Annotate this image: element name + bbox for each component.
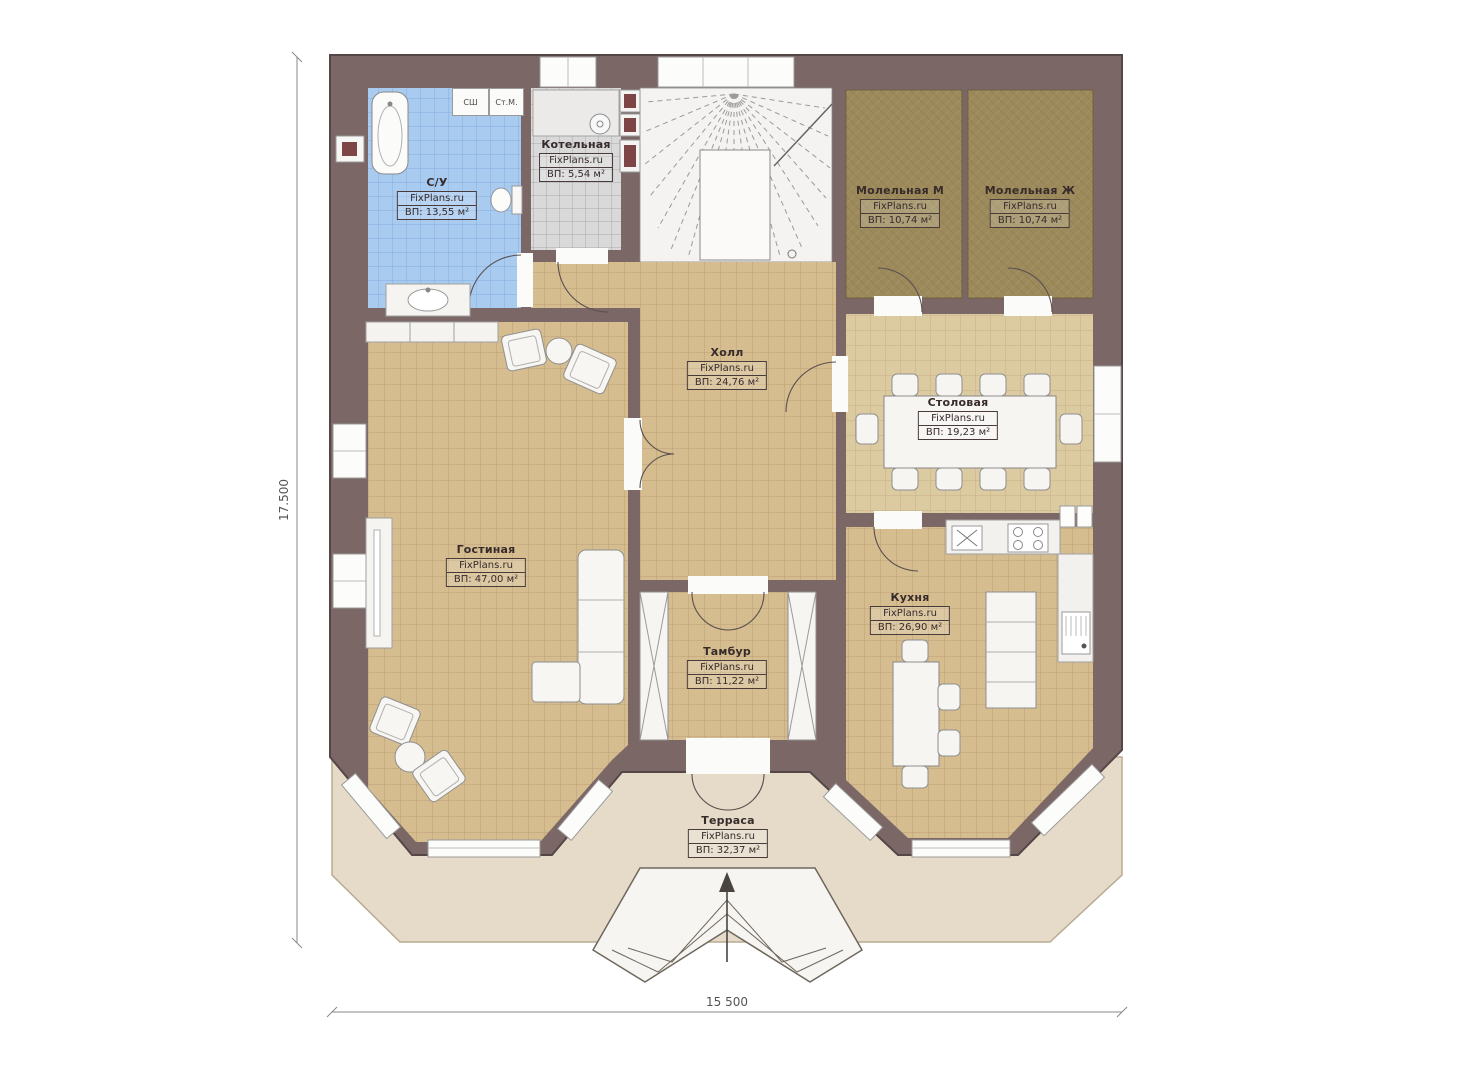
window-top-stairs [658,57,794,87]
floor-plan-canvas: С/У FixPlans.ru ВП: 13,55 м² Котельная F… [0,0,1474,1080]
room-area: ВП: 10,74 м² [991,213,1069,227]
room-label-terrace: Терраса FixPlans.ru ВП: 32,37 м² [688,814,768,858]
living-cabinets [366,322,498,342]
dining-chair [1024,374,1050,396]
dining-chair [892,374,918,396]
room-site: FixPlans.ru [447,559,525,572]
stairs-landing [700,150,770,260]
room-info-box: FixPlans.ru ВП: 26,90 м² [870,606,950,635]
dimension-label-width: 15 500 [706,995,748,1009]
toilet-bowl [491,188,511,212]
room-name: Столовая [918,396,998,409]
room-label-bathroom: С/У FixPlans.ru ВП: 13,55 м² [397,176,477,220]
toilet-tank [512,186,522,214]
room-name: Кухня [870,591,950,604]
room-site: FixPlans.ru [688,661,766,674]
boiler-unit [590,114,610,134]
room-name: Молельная Ж [985,184,1076,197]
room-label-dining: Столовая FixPlans.ru ВП: 19,23 м² [918,396,998,440]
room-name: Тамбур [687,645,767,658]
room-name: Котельная [539,138,613,151]
dining-chair [980,374,1006,396]
armchair [501,328,548,372]
room-name: С/У [397,176,477,189]
door-gap-living-hall [624,418,642,490]
dining-chair [892,468,918,490]
kitchen-table [893,662,939,766]
room-area: ВП: 32,37 м² [689,843,767,857]
room-info-box: FixPlans.ru ВП: 5,54 м² [539,153,613,182]
room-label-living: Гостиная FixPlans.ru ВП: 47,00 м² [446,543,526,587]
room-area: ВП: 10,74 м² [861,213,939,227]
room-label-prayer-m: Молельная М FixPlans.ru ВП: 10,74 м² [856,184,944,228]
kitchen-chair [902,640,928,662]
room-label-vestibule: Тамбур FixPlans.ru ВП: 11,22 м² [687,645,767,689]
room-name: Терраса [688,814,768,827]
room-area: ВП: 5,54 м² [540,167,612,181]
kitchen-chair [902,766,928,788]
door-gap-prayer-f [1004,296,1052,316]
appliance-label-drying-cabinet: СШ [452,88,489,116]
dining-chair [936,468,962,490]
sofa [578,550,624,704]
room-site: FixPlans.ru [689,830,767,843]
room-info-box: FixPlans.ru ВП: 10,74 м² [990,199,1070,228]
floor-plan-drawing [0,0,1474,1080]
room-name: Гостиная [446,543,526,556]
room-area: ВП: 24,76 м² [688,375,766,389]
room-info-box: FixPlans.ru ВП: 24,76 м² [687,361,767,390]
kitchen-chair [938,730,960,756]
kitchen-chair [938,684,960,710]
room-info-box: FixPlans.ru ВП: 47,00 м² [446,558,526,587]
room-info-box: FixPlans.ru ВП: 10,74 м² [860,199,940,228]
appliance-label-washing-machine: Ст.М. [489,88,524,116]
room-area: ВП: 13,55 м² [398,205,476,219]
room-label-prayer-f: Молельная Ж FixPlans.ru ВП: 10,74 м² [985,184,1076,228]
door-gap-hall-dining [832,356,848,412]
door-gap-entry [686,738,770,774]
room-site: FixPlans.ru [540,154,612,167]
room-site: FixPlans.ru [861,200,939,213]
dining-chair [1024,468,1050,490]
room-label-boiler: Котельная FixPlans.ru ВП: 5,54 м² [539,138,613,182]
room-label-hall: Холл FixPlans.ru ВП: 24,76 м² [687,346,767,390]
room-site: FixPlans.ru [919,412,997,425]
coffee-table [532,662,580,702]
room-info-box: FixPlans.ru ВП: 11,22 м² [687,660,767,689]
room-site: FixPlans.ru [871,607,949,620]
room-name: Молельная М [856,184,944,197]
door-gap-boiler [556,248,608,264]
fridge [1077,506,1092,527]
room-area: ВП: 19,23 м² [919,425,997,439]
room-site: FixPlans.ru [991,200,1069,213]
room-area: ВП: 47,00 м² [447,572,525,586]
room-info-box: FixPlans.ru ВП: 13,55 м² [397,191,477,220]
room-info-box: FixPlans.ru ВП: 19,23 м² [918,411,998,440]
door-gap-bathroom [517,253,533,307]
door-gap-prayer-m [874,296,922,316]
door-gap-hall-vestibule [688,576,768,594]
room-site: FixPlans.ru [398,192,476,205]
kitchen-island [986,592,1036,708]
room-info-box: FixPlans.ru ВП: 32,37 м² [688,829,768,858]
room-area: ВП: 26,90 м² [871,620,949,634]
side-table [546,338,572,364]
room-site: FixPlans.ru [688,362,766,375]
dimension-label-height: 17.500 [277,479,291,521]
dining-chair [856,414,878,444]
room-name: Холл [687,346,767,359]
dining-chair [980,468,1006,490]
dining-chair [936,374,962,396]
dining-chair [1060,414,1082,444]
room-area: ВП: 11,22 м² [688,674,766,688]
room-label-kitchen: Кухня FixPlans.ru ВП: 26,90 м² [870,591,950,635]
fridge [1060,506,1075,527]
door-gap-kitchen [874,511,922,529]
